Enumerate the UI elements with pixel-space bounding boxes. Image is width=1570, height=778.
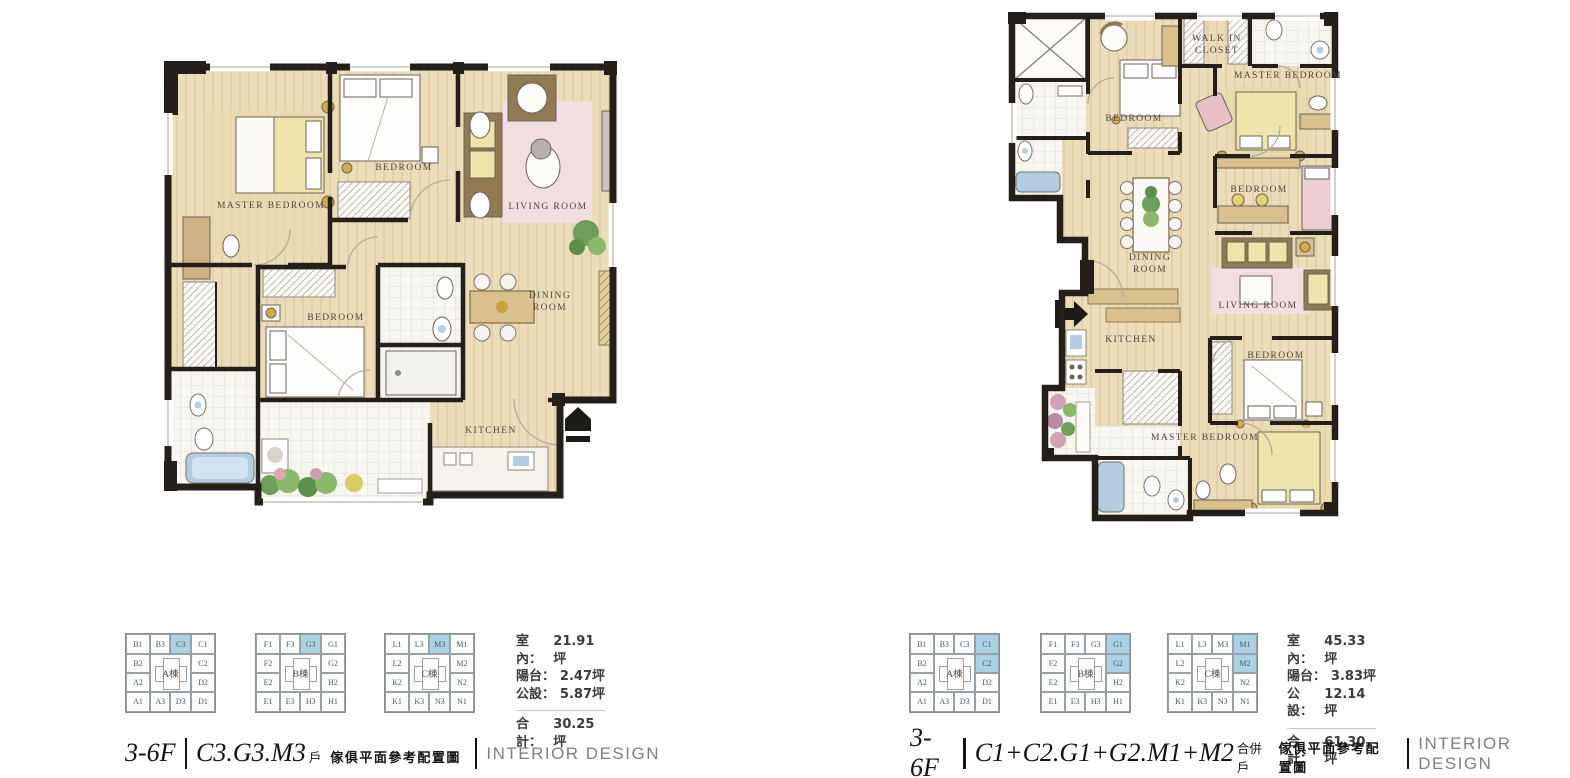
keyplan-cell-B2: B2 [910,654,934,673]
area-divider [516,710,605,711]
area-value: 12.14坪 [1324,686,1376,721]
keyplan-cell-M3: M3 [429,634,449,654]
keyplan-cell-D1: D1 [191,692,215,712]
floorplan-right-svg [1000,8,1355,528]
title-subtitle: 傢俱平面參考配置圖 [330,747,461,766]
keyplan-cell-L1: L1 [1168,634,1192,654]
keyplan-cell-G2: G2 [321,654,345,673]
keyplan-cell-K2: K2 [1168,673,1192,692]
keyplan-cell-B1: B1 [126,634,150,654]
keyplan-cell-E3: E3 [1065,692,1085,712]
keyplan-cell-E2: E2 [256,673,280,692]
title-brand: INTERIOR DESIGN [486,744,660,764]
keyplan-cell-F3: F3 [280,634,300,654]
keyplan-cell-B2: B2 [126,654,150,673]
keyplan-cell-K3: K3 [1192,692,1212,712]
keyplan-cell-F3: F3 [1065,634,1085,654]
keyplan-cell-A1: A1 [910,692,934,712]
keyplan-cell-H1: H1 [321,692,345,712]
keyplan-cell-K3: K3 [409,692,429,712]
keyplan-cell-D1: D1 [975,692,999,712]
keyplan-right-building-c: L1L3M3M1L2M2K2N2K1K3N3N1C棟 [1167,633,1258,713]
keyplan-core-A棟: A棟 [934,654,975,691]
keyplan-cell-F1: F1 [1041,634,1065,654]
title-right: 3-6F C1+C2.G1+G2.M1+M2 合併戶 傢俱平面參考配置圖 INT… [910,733,1570,773]
keyplan-cell-A2: A2 [910,673,934,692]
keyplan-cell-N1: N1 [1233,692,1257,712]
keyplan-cell-C2: C2 [191,654,215,673]
brochure-page: MASTER BEDROOM BEDROOM LIVING ROOM BEDRO… [0,0,1570,778]
keyplan-cell-L3: L3 [409,634,429,654]
kitchen-fixtures [432,447,548,491]
title-unit-suffix: 合併戶 [1237,738,1270,776]
keyplan-cell-M2: M2 [1233,654,1257,673]
keyplan-cell-G3: G3 [300,634,320,654]
keyplan-cell-N3: N3 [429,692,449,712]
keyplan-cell-E1: E1 [256,692,280,712]
area-label: 公設： [1287,686,1324,721]
area-row-public: 公設： 12.14坪 [1287,686,1376,721]
keyplan-cell-L2: L2 [1168,654,1192,673]
area-label: 公設： [516,686,555,704]
area-row-interior: 室內： 45.33坪 [1287,633,1376,668]
entrance-arrow [565,407,591,442]
area-value: 45.33坪 [1324,633,1376,668]
keyplan-cell-G1: G1 [1106,634,1130,654]
keyplan-cell-H2: H2 [1106,673,1130,692]
keyplan-cell-F2: F2 [256,654,280,673]
keyplan-cell-K2: K2 [385,673,409,692]
title-left: 3-6F C3.G3.M3 戶 傢俱平面參考配置圖 INTERIOR DESIG… [125,733,660,773]
area-row-interior: 室內： 21.91坪 [516,633,605,668]
keyplan-cell-E2: E2 [1041,673,1065,692]
keyplan-cell-G1: G1 [321,634,345,654]
area-row-balcony: 陽台： 2.47坪 [516,668,605,686]
keyplan-cell-C1: C1 [191,634,215,654]
keyplan-left-building-b: F1F3G3G1F2G2E2H2E1E3H3H1B棟 [255,633,346,713]
keyplan-core-A棟: A棟 [150,654,191,691]
title-divider-bar [963,738,966,769]
title-brand: INTERIOR DESIGN [1418,734,1570,774]
keyplan-core-C棟: C棟 [409,654,450,691]
living-room-furniture [1212,238,1332,314]
area-value: 5.87坪 [560,686,605,704]
keyplan-cell-A2: A2 [126,673,150,692]
keyplan-cell-K1: K1 [385,692,409,712]
title-unit-codes: C1+C2.G1+G2.M1+M2 [975,738,1234,768]
area-label: 室內： [1287,633,1324,668]
keyplan-core-C棟: C棟 [1192,654,1233,691]
keyplan-cell-F2: F2 [1041,654,1065,673]
keyplan-cell-F1: F1 [256,634,280,654]
keyplan-right-building-b: F1F3G3G1F2G2E2H2E1E3H3H1B棟 [1040,633,1131,713]
title-subtitle: 傢俱平面參考配置圖 [1279,738,1393,776]
keyplan-cell-D2: D2 [975,673,999,692]
keyplan-cell-C3: C3 [170,634,190,654]
keyplan-cell-G2: G2 [1106,654,1130,673]
keyplan-cell-N3: N3 [1212,692,1232,712]
keyplan-cell-L2: L2 [385,654,409,673]
keyplan-cell-B1: B1 [910,634,934,654]
keyplan-cell-N1: N1 [450,692,474,712]
elevator [1014,18,1086,80]
keyplan-cell-D3: D3 [170,692,190,712]
keyplan-cell-M1: M1 [1233,634,1257,654]
keyplan-cell-C2: C2 [975,654,999,673]
keyplan-cell-B3: B3 [934,634,954,654]
keyplan-cell-B3: B3 [150,634,170,654]
area-label: 室內： [516,633,553,668]
keyplan-cell-M2: M2 [450,654,474,673]
floorplan-left-svg [158,55,640,520]
keyplan-cell-N2: N2 [450,673,474,692]
keyplan-cell-N2: N2 [1233,673,1257,692]
keyplan-cell-H3: H3 [1085,692,1105,712]
keyplan-cell-G3: G3 [1085,634,1105,654]
keyplan-cell-H1: H1 [1106,692,1130,712]
floorplan-left: MASTER BEDROOM BEDROOM LIVING ROOM BEDRO… [158,55,640,520]
keyplan-cell-L3: L3 [1192,634,1212,654]
keyplan-cell-H3: H3 [300,692,320,712]
title-divider-bar [1407,738,1410,769]
title-unit-codes: C3.G3.M3 [196,738,306,768]
area-row-public: 公設： 5.87坪 [516,686,605,704]
keyplan-cell-E1: E1 [1041,692,1065,712]
keyplan-cell-A3: A3 [934,692,954,712]
keyplan-cell-A3: A3 [150,692,170,712]
keyplan-cell-E3: E3 [280,692,300,712]
area-divider [1287,728,1376,729]
title-unit-suffix: 戶 [309,747,322,766]
area-value: 2.47坪 [560,668,605,686]
title-floor: 3-6F [910,723,954,778]
area-value: 21.91坪 [553,633,605,668]
title-divider-bar [185,738,188,769]
keyplan-cell-M1: M1 [450,634,474,654]
area-label: 陽台： [516,668,555,686]
keyplan-cell-C1: C1 [975,634,999,654]
keyplan-cell-H2: H2 [321,673,345,692]
keyplan-left-building-c: L1L3M3M1L2M2K2N2K1K3N3N1C棟 [384,633,475,713]
keyplan-cell-D2: D2 [191,673,215,692]
area-row-balcony: 陽台： 3.83坪 [1287,668,1376,686]
keyplan-core-B棟: B棟 [280,654,321,691]
keyplan-cell-C3: C3 [954,634,974,654]
keyplan-cell-M3: M3 [1212,634,1232,654]
floorplan-right: BEDROOM WALK IN CLOSET MASTER BEDROOM BE… [1000,8,1355,528]
keyplan-core-B棟: B棟 [1065,654,1106,691]
keyplan-left-building-a: B1B3C3C1B2C2A2D2A1A3D3D1A棟 [125,633,216,713]
title-divider-bar [475,738,478,769]
keyplan-right-building-a: B1B3C3C1B2C2A2D2A1A3D3D1A棟 [909,633,1000,713]
keyplan-cell-D3: D3 [954,692,974,712]
keyplan-cell-K1: K1 [1168,692,1192,712]
keyplan-cell-A1: A1 [126,692,150,712]
keyplan-cell-L1: L1 [385,634,409,654]
area-label: 陽台： [1287,668,1326,686]
area-value: 3.83坪 [1331,668,1376,686]
title-floor: 3-6F [125,738,176,768]
